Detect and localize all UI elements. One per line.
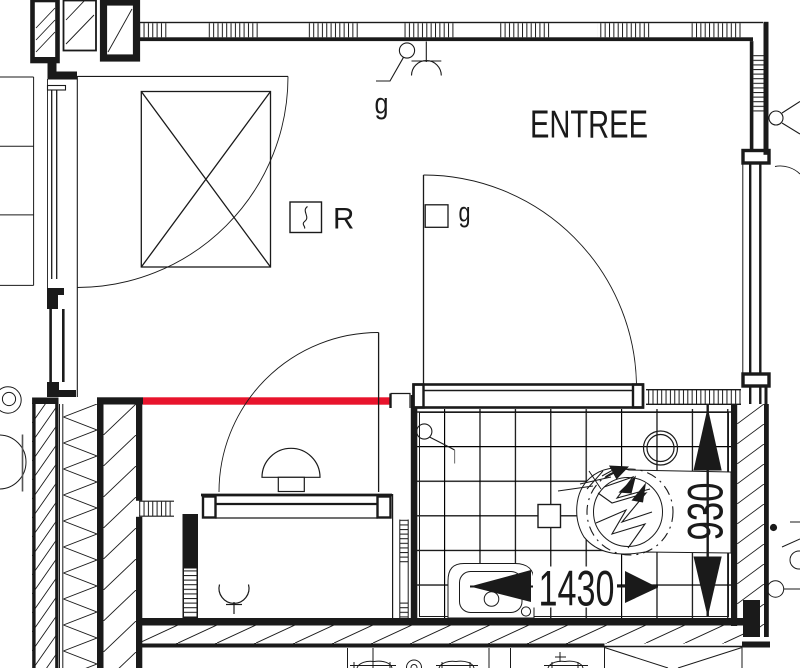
svg-text:g: g (375, 88, 389, 121)
svg-text:R: R (333, 203, 354, 236)
svg-text:930: 930 (677, 483, 734, 541)
svg-text:ENTREE: ENTREE (530, 104, 648, 147)
svg-text:g: g (459, 197, 471, 228)
svg-text:1430: 1430 (539, 560, 615, 617)
